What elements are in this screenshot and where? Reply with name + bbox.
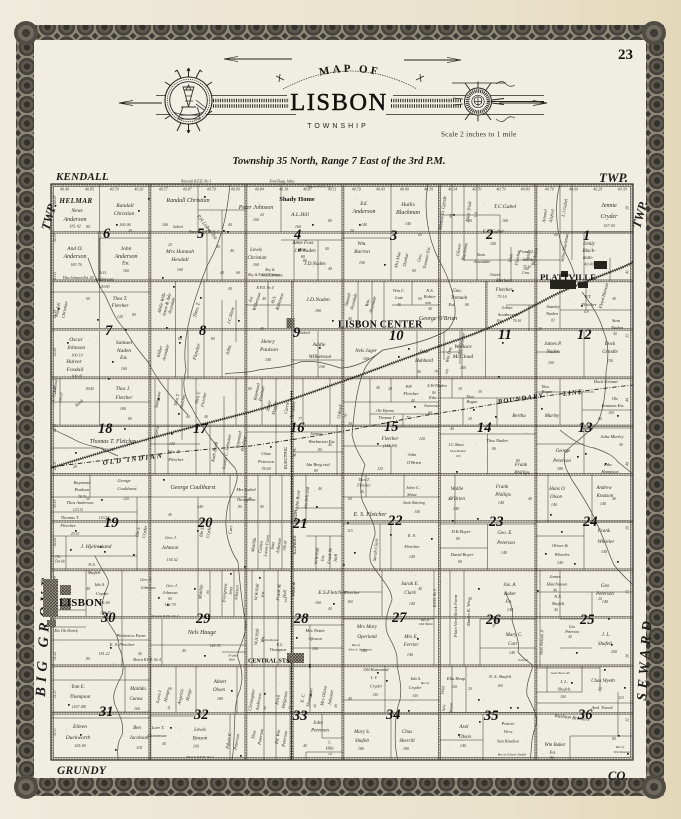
svg-text:40: 40 <box>553 589 557 593</box>
svg-text:School: School <box>300 331 310 335</box>
svg-text:80: 80 <box>432 391 436 395</box>
svg-text:40: 40 <box>450 427 454 431</box>
svg-text:Thompson: Thompson <box>237 497 257 502</box>
svg-text:Hogan: Hogan <box>466 399 478 404</box>
svg-text:Tom E.: Tom E. <box>71 685 85 690</box>
svg-text:Wilkenson: Wilkenson <box>309 354 332 360</box>
svg-text:80: 80 <box>86 225 90 229</box>
svg-text:80: 80 <box>492 447 496 451</box>
svg-text:20: 20 <box>598 597 602 601</box>
svg-text:40: 40 <box>260 327 264 331</box>
svg-text:Township 35 North, Range 7 Eas: Township 35 North, Range 7 East of the 3… <box>233 156 446 167</box>
svg-text:Fletcher: Fletcher <box>580 302 596 307</box>
svg-text:36.59: 36.59 <box>53 234 57 243</box>
svg-text:160: 160 <box>193 744 200 749</box>
svg-text:23: 23 <box>488 514 504 530</box>
svg-text:Fletcher: Fletcher <box>495 288 513 293</box>
svg-text:Jas. A.: Jas. A. <box>503 583 516 588</box>
svg-text:James: James <box>310 431 321 436</box>
svg-text:118: 118 <box>136 745 143 750</box>
svg-text:Anderson: Anderson <box>93 278 114 283</box>
svg-text:140: 140 <box>557 560 564 565</box>
svg-text:Est.: Est. <box>505 599 513 604</box>
svg-text:Fletcher: Fletcher <box>403 544 419 549</box>
svg-text:Roy & Fred Christian: Roy & Fred Christian <box>247 273 280 277</box>
svg-text:FOX &: FOX & <box>291 582 296 596</box>
svg-text:44: 44 <box>626 398 630 402</box>
svg-text:John S. Anderson: John S. Anderson <box>348 648 372 652</box>
svg-text:20: 20 <box>538 327 542 331</box>
svg-text:80: 80 <box>206 590 210 594</box>
svg-text:Robin-: Robin- <box>423 294 437 299</box>
svg-text:80: 80 <box>238 505 242 509</box>
svg-text:Wm C.: Wm C. <box>393 288 405 293</box>
svg-text:Wm Baker: Wm Baker <box>545 743 566 748</box>
svg-text:140: 140 <box>551 502 558 507</box>
svg-text:35: 35 <box>483 708 499 724</box>
svg-text:60: 60 <box>168 687 172 691</box>
svg-text:Ole Haram: Ole Haram <box>376 409 393 413</box>
svg-text:Henry: Henry <box>260 339 275 345</box>
svg-text:32: 32 <box>193 707 209 723</box>
svg-text:GRUNDY: GRUNDY <box>57 765 107 777</box>
svg-text:40: 40 <box>220 270 224 275</box>
svg-text:Naden: Naden <box>545 350 560 355</box>
svg-text:183.76: 183.76 <box>70 262 82 267</box>
svg-text:Hans O: Hans O <box>548 487 565 492</box>
svg-text:20: 20 <box>598 687 602 691</box>
svg-text:80: 80 <box>612 737 616 741</box>
svg-text:Shufelt: Shufelt <box>88 570 101 575</box>
svg-text:LISBON: LISBON <box>59 597 102 609</box>
svg-text:Axel: Axel <box>459 725 469 730</box>
svg-text:40.57: 40.57 <box>159 187 169 192</box>
svg-text:Jacobson: Jacobson <box>130 736 149 741</box>
svg-text:Cryder: Cryder <box>370 684 383 689</box>
svg-text:80: 80 <box>168 597 172 601</box>
svg-text:40.87: 40.87 <box>183 187 193 192</box>
svg-text:80: 80 <box>318 448 322 452</box>
svg-text:Old Walsh: Old Walsh <box>419 622 433 626</box>
svg-text:23: 23 <box>618 47 633 63</box>
svg-text:160: 160 <box>456 454 461 458</box>
svg-text:Fosdail: Fosdail <box>66 367 84 373</box>
svg-text:Fletcher: Fletcher <box>59 523 75 528</box>
svg-text:And O.: And O. <box>66 246 83 252</box>
svg-text:180: 180 <box>557 466 564 471</box>
svg-text:Wm.: Wm. <box>357 242 366 247</box>
svg-text:Church: Church <box>490 273 501 277</box>
svg-text:119: 119 <box>583 310 589 314</box>
svg-text:Ole: Ole <box>612 396 619 401</box>
svg-text:33: 33 <box>626 334 630 338</box>
svg-text:Wallace: Wallace <box>454 344 472 350</box>
svg-text:Hille: Hille <box>325 746 335 751</box>
svg-text:Samuel: Samuel <box>116 340 133 346</box>
svg-text:140: 140 <box>409 554 416 559</box>
svg-text:140: 140 <box>501 550 508 555</box>
svg-text:Res of: Res of <box>351 643 361 647</box>
svg-text:Black-: Black- <box>582 249 595 254</box>
svg-text:J.D.Naden: J.D.Naden <box>306 297 330 303</box>
svg-text:Southcomb: Southcomb <box>498 312 519 317</box>
svg-text:Dock: Dock <box>604 342 616 347</box>
svg-text:200: 200 <box>611 649 618 654</box>
svg-text:11: 11 <box>498 327 512 343</box>
svg-text:40: 40 <box>230 248 234 253</box>
svg-text:Naden: Naden <box>610 325 623 330</box>
svg-text:140: 140 <box>453 506 460 511</box>
svg-text:40.29: 40.29 <box>593 187 602 192</box>
svg-text:32: 32 <box>626 718 630 722</box>
svg-text:40: 40 <box>90 387 94 391</box>
svg-text:Fletcher: Fletcher <box>115 396 133 401</box>
svg-text:J.D.Naden: J.D.Naden <box>304 262 326 267</box>
svg-text:140: 140 <box>602 599 609 604</box>
svg-text:Morris R.F.D. No 1: Morris R.F.D. No 1 <box>306 185 334 189</box>
svg-text:120: 120 <box>377 467 383 471</box>
svg-text:Est.: Est. <box>448 302 456 307</box>
svg-text:120: 120 <box>419 436 426 441</box>
svg-text:Ida S.: Ida S. <box>410 676 422 681</box>
svg-text:13: 13 <box>578 420 593 436</box>
svg-text:Knutson: Knutson <box>596 494 614 499</box>
svg-text:80: 80 <box>412 269 416 273</box>
svg-text:160: 160 <box>253 217 260 222</box>
svg-text:School: School <box>173 225 183 229</box>
svg-text:Geo. E.: Geo. E. <box>497 531 512 536</box>
svg-text:60: 60 <box>236 270 240 275</box>
svg-text:Thos J.: Thos J. <box>116 387 130 392</box>
svg-text:20: 20 <box>468 417 472 421</box>
svg-text:160: 160 <box>177 267 184 272</box>
svg-text:31.22: 31.22 <box>53 652 57 661</box>
svg-text:Johnson: Johnson <box>162 546 179 551</box>
svg-text:Lutz: Lutz <box>394 295 403 300</box>
svg-text:Geo.: Geo. <box>452 289 462 294</box>
svg-text:J.D.Naden: J.D.Naden <box>294 249 316 254</box>
svg-text:14: 14 <box>477 420 492 436</box>
svg-text:160: 160 <box>121 366 128 371</box>
svg-text:40.40: 40.40 <box>60 187 69 192</box>
svg-text:Mary C.: Mary C. <box>505 633 523 638</box>
svg-text:Frank: Frank <box>495 485 509 490</box>
svg-text:LISBON CENTER: LISBON CENTER <box>338 320 423 331</box>
svg-text:29: 29 <box>626 526 630 530</box>
svg-text:Ida S.: Ida S. <box>94 582 106 587</box>
svg-text:Randall Christian: Randall Christian <box>165 198 209 204</box>
svg-text:160: 160 <box>502 218 509 223</box>
svg-text:Albert: Albert <box>213 680 227 685</box>
svg-text:104: 104 <box>284 597 289 603</box>
svg-text:KENDALL: KENDALL <box>55 171 109 183</box>
svg-text:Mrs Hannah: Mrs Hannah <box>165 249 194 255</box>
svg-text:Addie: Addie <box>312 342 326 348</box>
svg-text:40: 40 <box>204 415 208 419</box>
svg-text:40.60: 40.60 <box>569 187 578 192</box>
svg-text:25: 25 <box>579 612 595 628</box>
svg-text:40.70: 40.70 <box>472 187 481 192</box>
svg-text:James P.: James P. <box>544 342 561 347</box>
svg-text:Scale 2 inches to 1 mile: Scale 2 inches to 1 mile <box>441 131 517 139</box>
svg-text:T.C.Gabel: T.C.Gabel <box>494 204 517 210</box>
svg-text:115: 115 <box>347 529 353 533</box>
svg-text:Wm. T.: Wm. T. <box>168 449 181 454</box>
svg-text:34: 34 <box>385 707 401 723</box>
svg-text:Cryder: Cryder <box>409 685 422 690</box>
svg-text:80: 80 <box>465 303 469 307</box>
svg-text:N.S.: N.S. <box>553 594 562 599</box>
svg-text:R.F.D. No 4: R.F.D. No 4 <box>255 286 273 290</box>
svg-text:Prairie: Prairie <box>501 721 515 726</box>
svg-text:John: John <box>313 721 323 726</box>
svg-text:40: 40 <box>626 462 630 466</box>
svg-text:Geo J.: Geo J. <box>166 583 178 588</box>
svg-text:40: 40 <box>228 222 232 227</box>
svg-text:Res of: Res of <box>420 681 430 685</box>
svg-text:TOWNSHIP: TOWNSHIP <box>307 123 369 130</box>
svg-text:Paulson: Paulson <box>74 487 91 492</box>
svg-text:Lore T.: Lore T. <box>151 725 165 730</box>
svg-text:24: 24 <box>582 514 598 530</box>
svg-text:40.34: 40.34 <box>448 187 457 192</box>
svg-text:18: 18 <box>98 421 113 437</box>
svg-text:167.50: 167.50 <box>603 223 615 228</box>
svg-text:80: 80 <box>314 469 318 473</box>
svg-text:78.60: 78.60 <box>261 466 271 471</box>
svg-text:160: 160 <box>315 600 322 605</box>
svg-text:I. V.: I. V. <box>370 675 378 680</box>
svg-text:P.T.: P.T. <box>584 294 592 299</box>
svg-text:120: 120 <box>117 314 124 319</box>
svg-text:80: 80 <box>449 214 454 218</box>
svg-text:CO.: CO. <box>608 769 629 783</box>
svg-text:E. S. Fletcher: E. S. Fletcher <box>109 642 135 647</box>
svg-text:40: 40 <box>328 607 332 611</box>
svg-text:Res of: Res of <box>615 745 625 749</box>
svg-text:36: 36 <box>577 707 593 723</box>
svg-text:Hutchinson: Hutchinson <box>546 582 568 587</box>
svg-text:40: 40 <box>568 635 572 639</box>
svg-text:20: 20 <box>448 497 452 501</box>
svg-text:Mrs Nettie: Mrs Nettie <box>304 628 324 633</box>
svg-text:4: 4 <box>293 227 301 243</box>
svg-text:20: 20 <box>128 229 132 233</box>
svg-text:Afinson: Afinson <box>307 636 323 641</box>
svg-text:George Coulthurst: George Coulthurst <box>171 485 216 491</box>
svg-text:30: 30 <box>478 390 482 394</box>
svg-text:Est.: Est. <box>260 590 266 598</box>
svg-text:Peterson: Peterson <box>310 729 329 734</box>
svg-text:78.76: 78.76 <box>78 495 87 499</box>
svg-text:Anderson: Anderson <box>114 254 138 260</box>
svg-text:60: 60 <box>418 233 422 237</box>
svg-text:40.43: 40.43 <box>376 187 385 192</box>
svg-text:Thomas T.: Thomas T. <box>61 515 80 520</box>
svg-text:Stan: Stan <box>612 318 621 323</box>
svg-text:80: 80 <box>128 417 132 421</box>
svg-text:29.10: 29.10 <box>71 532 80 536</box>
svg-text:40.26: 40.26 <box>134 187 143 192</box>
svg-text:CENTRAL STA.: CENTRAL STA. <box>248 659 292 665</box>
svg-text:40: 40 <box>328 266 332 271</box>
svg-text:Naden: Naden <box>116 348 132 354</box>
svg-text:79.16: 79.16 <box>497 294 507 299</box>
svg-text:L.: L. <box>327 740 331 745</box>
svg-text:140: 140 <box>372 693 378 697</box>
svg-text:100: 100 <box>560 695 566 699</box>
svg-text:60: 60 <box>554 233 558 237</box>
svg-text:40: 40 <box>182 649 186 653</box>
svg-text:Thompson: Thompson <box>270 647 287 652</box>
svg-text:40: 40 <box>325 246 329 251</box>
svg-text:21.27: 21.27 <box>53 689 57 699</box>
svg-text:60: 60 <box>86 297 90 301</box>
svg-text:80: 80 <box>456 537 460 541</box>
svg-text:J. L.: J. L. <box>560 679 568 684</box>
svg-text:140: 140 <box>600 501 607 506</box>
svg-text:2: 2 <box>485 227 493 243</box>
svg-text:79: 79 <box>344 414 349 419</box>
svg-text:N. S. Shufelt: N. S. Shufelt <box>488 674 512 679</box>
svg-text:Peter Johnson: Peter Johnson <box>238 205 274 211</box>
svg-text:David Boyer: David Boyer <box>450 552 474 557</box>
svg-text:Mrs E.: Mrs E. <box>403 635 418 640</box>
svg-text:Anderson: Anderson <box>63 254 87 260</box>
svg-text:Chas Wyeth: Chas Wyeth <box>591 679 615 684</box>
svg-text:James: James <box>549 574 560 579</box>
svg-text:Newt: Newt <box>70 208 83 214</box>
svg-text:7: 7 <box>105 323 113 339</box>
svg-text:Derick: Derick <box>54 560 65 564</box>
svg-text:Nelson: Nelson <box>449 702 454 714</box>
svg-text:22: 22 <box>387 513 403 529</box>
svg-text:Est.: Est. <box>121 262 130 267</box>
svg-text:60: 60 <box>428 411 432 415</box>
svg-text:Jennie: Jennie <box>601 203 617 209</box>
svg-text:A.L.Hill: A.L.Hill <box>290 212 309 218</box>
svg-text:100.80: 100.80 <box>99 284 110 289</box>
svg-text:J. L.: J. L. <box>602 633 611 638</box>
svg-text:Shufelt: Shufelt <box>355 739 369 744</box>
svg-text:21: 21 <box>292 516 308 532</box>
svg-text:180: 180 <box>217 696 224 701</box>
svg-text:Ole: Ole <box>55 555 61 559</box>
svg-text:31: 31 <box>98 704 114 720</box>
svg-text:Baker: Baker <box>504 592 516 597</box>
svg-text:Cryder: Cryder <box>601 214 619 220</box>
svg-text:19: 19 <box>104 515 119 531</box>
svg-text:Eileen: Eileen <box>72 724 87 730</box>
svg-text:Halvor: Halvor <box>65 359 82 365</box>
svg-text:Nels: Nels <box>442 704 447 713</box>
svg-text:60: 60 <box>598 417 602 421</box>
svg-text:Nels Nelson Jr: Nels Nelson Jr <box>539 629 545 656</box>
svg-text:Hall: Hall <box>333 553 339 563</box>
svg-text:160: 160 <box>497 684 503 688</box>
svg-text:ELECTRIC: ELECTRIC <box>283 446 288 469</box>
svg-text:Mrs Mary: Mrs Mary <box>356 625 378 630</box>
svg-text:Frank: Frank <box>514 463 528 468</box>
svg-text:20: 20 <box>350 229 354 233</box>
svg-text:Operland: Operland <box>357 635 377 640</box>
svg-text:80: 80 <box>468 219 472 223</box>
svg-text:3: 3 <box>389 228 397 244</box>
svg-text:80: 80 <box>328 219 332 223</box>
svg-text:Hampson: Hampson <box>600 469 619 474</box>
svg-text:134.62: 134.62 <box>166 557 178 562</box>
svg-text:160: 160 <box>319 364 326 369</box>
svg-text:Christian: Christian <box>114 211 135 217</box>
svg-text:20: 20 <box>197 515 213 531</box>
svg-text:40.70: 40.70 <box>207 187 216 192</box>
svg-text:Old Homestead: Old Homestead <box>364 667 390 672</box>
svg-text:30: 30 <box>348 422 352 426</box>
svg-text:46: 46 <box>360 490 364 494</box>
svg-text:Wheeler: Wheeler <box>555 552 570 557</box>
svg-text:Anderson: Anderson <box>63 217 87 223</box>
svg-text:June: June <box>419 350 429 355</box>
svg-text:6: 6 <box>103 226 111 242</box>
svg-text:Anderson: Anderson <box>352 209 376 215</box>
svg-text:Benson: Benson <box>193 737 208 742</box>
svg-text:Geo: Geo <box>601 584 610 589</box>
svg-text:20: 20 <box>86 497 90 501</box>
svg-text:123.45: 123.45 <box>100 610 111 615</box>
svg-text:80: 80 <box>248 387 252 391</box>
svg-text:View: View <box>504 729 513 734</box>
svg-text:40.39: 40.39 <box>618 187 627 192</box>
svg-text:79: 79 <box>434 370 438 374</box>
svg-text:Fletcher: Fletcher <box>343 590 359 595</box>
svg-text:44.13: 44.13 <box>53 424 57 433</box>
svg-text:15: 15 <box>384 419 399 435</box>
svg-text:40.79: 40.79 <box>497 187 506 192</box>
svg-text:Peterson: Peterson <box>496 541 515 546</box>
svg-text:36: 36 <box>626 654 630 658</box>
svg-text:Bertha: Bertha <box>512 414 526 419</box>
svg-text:39.59: 39.59 <box>53 500 57 509</box>
svg-text:Mary S.: Mary S. <box>353 730 370 735</box>
svg-text:Matilda: Matilda <box>129 687 146 692</box>
svg-text:160: 160 <box>548 360 555 365</box>
svg-text:160: 160 <box>253 262 260 267</box>
svg-text:O'Brien: O'Brien <box>407 460 422 465</box>
svg-text:40.39: 40.39 <box>424 187 433 192</box>
svg-text:School: School <box>518 658 527 662</box>
svg-text:Morris R.F.D. No 4: Morris R.F.D. No 4 <box>132 658 161 662</box>
svg-text:Norwich R.F.D. No 1: Norwich R.F.D. No 1 <box>180 180 211 184</box>
svg-text:S.W.Naden: S.W.Naden <box>427 383 447 388</box>
svg-text:Thos T.: Thos T. <box>113 297 128 302</box>
svg-text:Duckworth: Duckworth <box>65 735 91 741</box>
svg-text:Ed.: Ed. <box>359 201 368 207</box>
svg-text:40: 40 <box>348 697 352 701</box>
svg-text:140: 140 <box>409 601 416 606</box>
svg-text:Herbert: Herbert <box>495 279 512 284</box>
svg-text:R.F.D. No 2: R.F.D. No 2 <box>433 589 437 608</box>
svg-text:20: 20 <box>328 752 332 756</box>
svg-text:Dock Grinair: Dock Grinair <box>593 379 619 384</box>
svg-text:40: 40 <box>417 370 421 374</box>
svg-text:Shaw: Shaw <box>407 492 417 497</box>
svg-text:Thos Naden: Thos Naden <box>486 438 508 443</box>
svg-text:Murley: Murley <box>544 414 560 419</box>
svg-text:Johnn: Johnn <box>502 305 514 310</box>
svg-text:Res of Gilbert Shufelt: Res of Gilbert Shufelt <box>497 753 527 757</box>
svg-text:40.70: 40.70 <box>545 187 554 192</box>
svg-text:140: 140 <box>405 221 412 226</box>
